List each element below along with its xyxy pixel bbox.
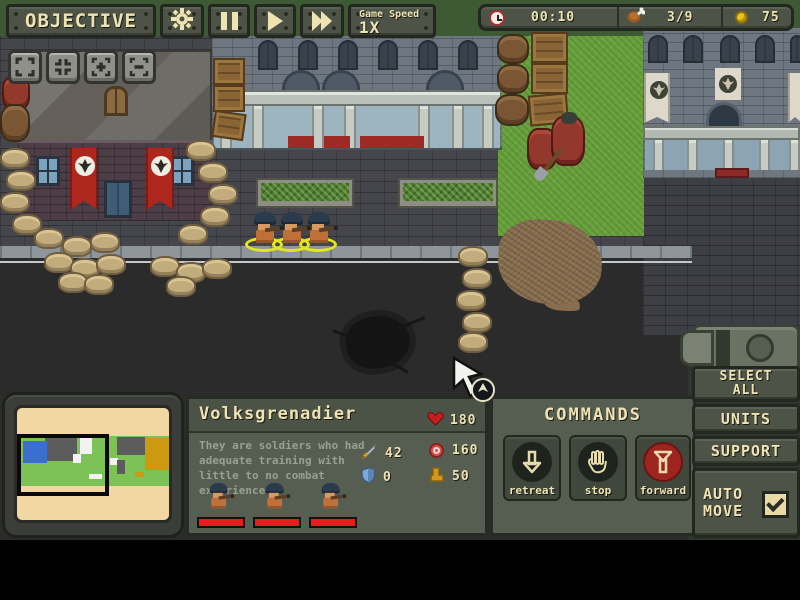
retreat-arrow-icon [512,442,552,482]
forward-button[interactable]: forward [635,435,691,501]
sandbag [198,162,228,183]
column [252,106,264,148]
crate [211,110,246,141]
column [759,140,770,170]
red-banner [146,148,174,210]
roof-dormer-window [104,86,128,116]
portico-beam [212,90,502,106]
left-building-window [36,156,60,186]
center-building-window [458,40,478,70]
unit-name: Volksgrenadier [199,404,356,424]
right-building-window [790,35,800,63]
rations-value: 3/9 [667,10,693,25]
units-label: UNITS [721,410,771,428]
commands-panel: COMMANDS retreat stop forward [490,396,696,536]
squad-member-thumbnail[interactable] [253,483,301,531]
right-building-window [648,35,668,63]
objective-button[interactable]: OBJECTIVE [6,4,156,38]
stop-button[interactable]: stop [569,435,627,501]
center-building-window [338,40,358,70]
objective-label: OBJECTIVE [25,10,137,32]
unit-cost-stat: 160 [429,443,478,458]
coins-section: 75 [721,7,791,28]
column [687,140,698,170]
center-building-window [418,40,438,70]
white-banner [788,73,800,123]
unit-armor-stat: 0 [361,467,392,487]
health-bar [253,517,301,528]
target-icon [429,443,444,458]
game-screen: OBJECTIVE Game Speed 1X 00:10 3/9 [0,0,800,600]
coins-value: 75 [762,10,780,25]
retreat-button[interactable]: retreat [503,435,561,501]
pause-icon [221,12,238,30]
sandbag [458,246,488,267]
sandbag [202,258,232,279]
resource-bar: 00:10 3/9 75 [478,4,794,31]
sword-icon [361,443,377,463]
minimap-block [117,437,145,455]
right-building-window [755,35,775,63]
wooden-barrel [495,94,529,126]
sandbag [84,274,114,295]
sandbag [0,192,30,213]
letterbox-bottom [0,540,800,600]
soldier-rifle [219,494,235,499]
hedge-planter [398,178,498,208]
sandbag [462,312,492,333]
drumstick-icon [627,7,645,28]
center-building-window [378,40,398,70]
left-building-door [104,180,132,218]
health-bar-fill [199,519,243,526]
sandbag [6,170,36,191]
minimap-screen[interactable] [14,405,172,523]
squad-member-thumbnail[interactable] [309,483,357,531]
support-button[interactable]: SUPPORT [692,436,800,466]
settings-button[interactable] [160,4,204,38]
play-icon [268,11,283,31]
game-speed-panel: Game Speed 1X [348,4,436,38]
sandbag [458,332,488,353]
gear-icon [171,8,193,34]
soldier-rifle [275,494,291,499]
sandbag [208,184,238,205]
soldier-rifle [331,494,347,499]
hedge-planter [256,178,354,208]
red-awning [360,136,424,148]
sandbag [200,206,230,227]
crate [213,58,245,85]
auto-move-label: AUTO MOVE [703,486,751,521]
timer-section: 00:10 [481,10,617,26]
coin-icon [735,11,748,24]
squad-member-thumbnail[interactable] [197,483,245,531]
shield-icon [361,467,375,487]
unit-move-value: 50 [452,469,470,484]
center-building-window [298,40,318,70]
column [452,106,464,148]
wooden-barrel [497,64,529,94]
column [482,106,494,148]
column [723,140,734,170]
crater [332,306,426,384]
units-button[interactable]: UNITS [692,404,800,434]
soldier-unit-selected[interactable] [306,212,332,248]
select-all-button[interactable]: SELECT ALL [692,366,800,402]
unit-attack-stat: 42 [361,443,403,463]
wooden-barrel [497,34,529,64]
right-building-window [720,35,740,63]
red-carpet [715,168,749,178]
column [789,140,800,170]
camera-zoom-out-button[interactable] [122,50,156,84]
retreat-label: retreat [505,484,559,497]
sandbag [166,276,196,297]
rations-section: 3/9 [617,7,721,28]
sandbag [90,232,120,253]
play-button[interactable] [254,4,296,38]
right-building-window [683,35,703,63]
boot-icon [429,467,444,486]
forward-label: forward [637,484,689,497]
red-awning [288,136,314,148]
center-building [212,36,502,150]
sandbag [456,290,486,311]
minimap-viewport[interactable] [17,434,109,496]
portico-beam [643,126,800,140]
unit-cost-value: 160 [452,443,478,458]
red-barrel-cluster [527,112,597,178]
camera-expand-button[interactable] [8,50,42,84]
timer-value: 00:10 [531,10,575,25]
column [653,140,664,170]
heart-icon [427,411,444,430]
health-bar-fill [255,519,299,526]
clock-icon [489,10,505,26]
unit-attack-value: 42 [385,446,403,461]
sandbag [34,228,64,249]
crate [531,32,568,63]
minimap-block [145,438,171,470]
barrel-cap [561,112,577,124]
health-bar [197,517,245,528]
sandbag [0,148,30,169]
tank-windshield [716,330,730,366]
wall-plaque [715,68,741,100]
unit-move-stat: 50 [429,467,470,486]
center-building-window [258,40,278,70]
pause-button[interactable] [208,4,250,38]
forward-arrow-icon [643,442,683,482]
select-all-label: SELECT ALL [711,370,781,399]
support-label: SUPPORT [711,442,781,460]
health-bar [309,517,357,528]
auto-move-button[interactable]: AUTO MOVE [692,468,800,538]
minimap-block [117,460,125,474]
tank-hood [680,330,714,366]
health-bar-fill [311,519,355,526]
camera-zoom-in-button[interactable] [84,50,118,84]
right-building [643,28,800,178]
fast-forward-icon [312,11,332,31]
sandbag [96,254,126,275]
white-banner [644,73,670,123]
minimap-panel[interactable] [2,392,184,538]
checkbox-check-icon [766,493,784,511]
sandbag [462,268,492,289]
sandbag [178,224,208,245]
crate [531,63,568,94]
wooden-barrel [0,104,30,142]
tank-hatch [746,334,774,362]
minimap-block [135,472,144,477]
sandbag [186,140,216,161]
stop-hand-icon [578,442,618,482]
auto-move-checkbox[interactable] [762,491,789,518]
crater-hole [341,310,414,374]
game-speed-value: 1X [359,18,425,37]
red-awning [324,136,350,148]
stop-label: stop [571,484,625,497]
unit-armor-value: 0 [383,470,392,485]
unit-info-panel: Volksgrenadier 180 They are soldiers who… [186,396,488,536]
fast-forward-button[interactable] [300,4,344,38]
red-banner [70,148,98,210]
unit-hp-value: 180 [450,413,476,428]
unit-hp-stat: 180 [427,411,476,430]
commands-title: COMMANDS [493,405,693,425]
crate [213,85,245,112]
camera-contract-button[interactable] [46,50,80,84]
mouse-cursor-icon [450,356,500,404]
